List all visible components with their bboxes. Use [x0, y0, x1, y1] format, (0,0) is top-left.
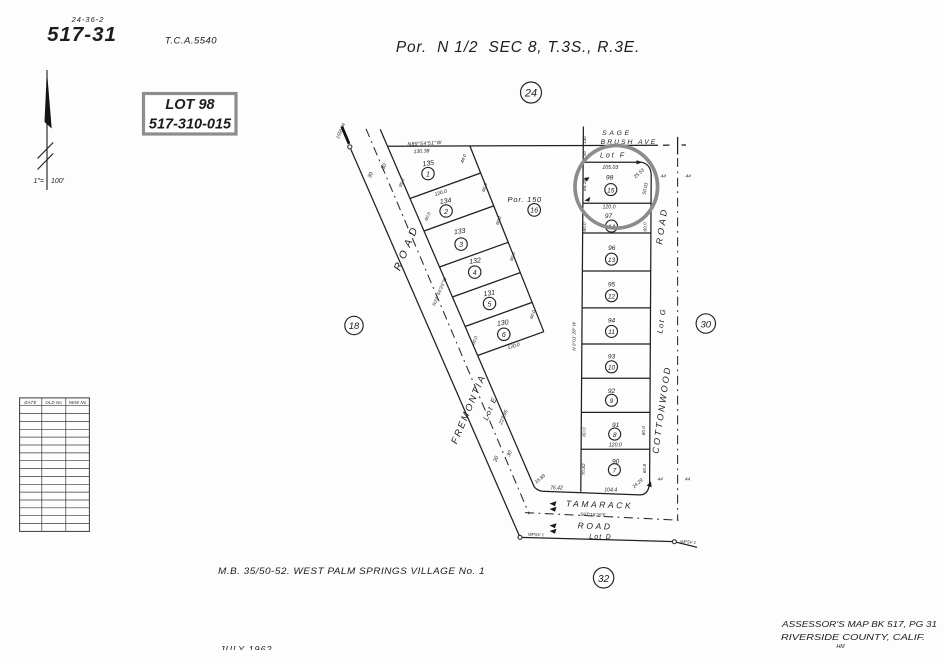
svg-text:T.C.A.5540: T.C.A.5540: [165, 36, 217, 47]
svg-text:130: 130: [582, 136, 587, 144]
svg-text:60.8: 60.8: [642, 464, 648, 474]
svg-text:Lot F: Lot F: [600, 152, 626, 159]
svg-text:9: 9: [610, 398, 614, 405]
svg-text:3: 3: [459, 242, 463, 249]
svg-text:HM: HM: [836, 644, 845, 650]
svg-text:60.0: 60.0: [641, 426, 647, 436]
svg-text:1: 1: [426, 171, 430, 178]
svg-text:95: 95: [608, 282, 616, 289]
svg-text:30: 30: [701, 319, 712, 330]
svg-text:32: 32: [598, 574, 610, 585]
svg-text:SAGE: SAGE: [602, 130, 632, 137]
svg-text:50: 50: [582, 151, 587, 156]
svg-text:104.4: 104.4: [604, 487, 617, 493]
svg-text:60.0: 60.0: [582, 222, 588, 232]
svg-text:60.0: 60.0: [642, 222, 648, 232]
svg-text:105.03: 105.03: [602, 165, 618, 171]
svg-text:24: 24: [524, 88, 537, 100]
svg-text:6: 6: [502, 332, 506, 339]
svg-text:44: 44: [686, 174, 692, 180]
svg-text:2: 2: [443, 209, 448, 216]
svg-text:DATE: DATE: [24, 400, 36, 405]
svg-text:WPSV 1: WPSV 1: [528, 532, 544, 537]
svg-text:Lot D: Lot D: [589, 534, 612, 542]
svg-text:4: 4: [473, 270, 477, 277]
svg-text:Por. 150: Por. 150: [508, 195, 543, 204]
svg-text:8: 8: [613, 432, 617, 439]
svg-text:130.38: 130.38: [413, 148, 429, 155]
svg-text:70.82: 70.82: [581, 463, 587, 475]
svg-text:NEW No: NEW No: [69, 400, 87, 405]
svg-text:S87°16′20″E: S87°16′20″E: [580, 512, 607, 518]
svg-text:M.B. 35/50-52. WEST PALM SPRIN: M.B. 35/50-52. WEST PALM SPRINGS VILLAGE…: [218, 566, 485, 576]
svg-text:76.42: 76.42: [550, 485, 563, 491]
svg-text:Por. N 1/2 SEC 8, T.3S., R.3: Por. N 1/2 SEC 8, T.3S., R.3E.: [396, 39, 640, 56]
svg-text:WPSV 1: WPSV 1: [680, 539, 696, 545]
svg-text:16: 16: [530, 208, 538, 215]
svg-text:517-310-015: 517-310-015: [149, 117, 232, 133]
svg-text:98: 98: [606, 175, 614, 182]
svg-text:100′: 100′: [51, 178, 65, 185]
svg-text:15: 15: [607, 187, 615, 194]
svg-text:13: 13: [608, 257, 616, 264]
svg-text:97: 97: [605, 213, 613, 220]
svg-text:94: 94: [608, 318, 616, 325]
svg-text:44: 44: [685, 477, 691, 483]
svg-text:12: 12: [608, 293, 616, 300]
svg-text:1″=: 1″=: [34, 178, 44, 185]
svg-text:93: 93: [608, 354, 616, 361]
svg-text:7: 7: [613, 467, 617, 474]
svg-text:5: 5: [488, 301, 492, 308]
svg-text:ROAD: ROAD: [577, 520, 612, 531]
svg-text:44: 44: [658, 477, 664, 483]
svg-text:10: 10: [608, 365, 616, 372]
svg-text:517-31: 517-31: [47, 23, 117, 46]
svg-text:18: 18: [349, 321, 360, 332]
svg-text:120.0: 120.0: [609, 443, 622, 449]
svg-text:44: 44: [661, 174, 667, 180]
svg-text:60.0: 60.0: [582, 427, 588, 437]
svg-text:ASSESSOR'S MAP BK 517, PG 31: ASSESSOR'S MAP BK 517, PG 31: [781, 619, 937, 629]
svg-text:120.0: 120.0: [603, 204, 616, 210]
svg-text:LOT 98: LOT 98: [165, 97, 215, 113]
svg-text:11: 11: [608, 329, 615, 336]
svg-text:RIVERSIDE COUNTY, CALIF.: RIVERSIDE COUNTY, CALIF.: [781, 632, 925, 642]
svg-text:N 0°01′ 28″ W: N 0°01′ 28″ W: [572, 321, 577, 350]
svg-text:OLD No: OLD No: [46, 400, 63, 405]
svg-text:96: 96: [608, 245, 616, 252]
